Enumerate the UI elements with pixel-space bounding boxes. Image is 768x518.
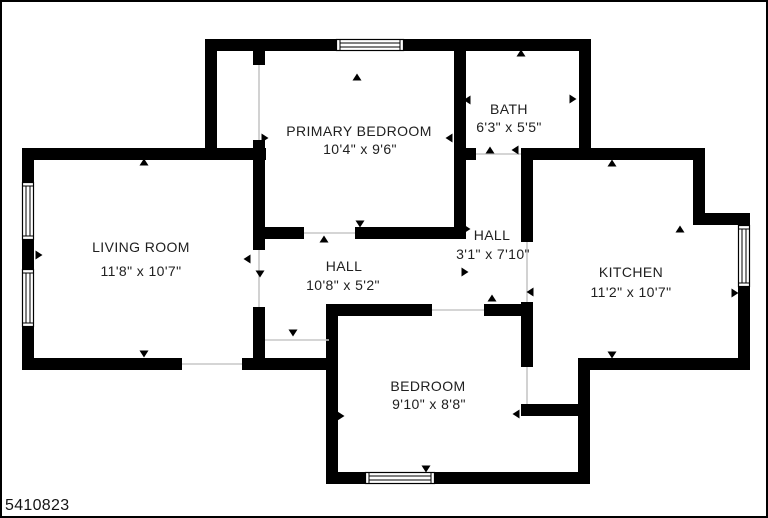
listing-id: 5410823	[5, 498, 69, 514]
door-swing-arrow-icon	[140, 351, 149, 358]
window	[23, 270, 34, 327]
wall	[22, 358, 182, 370]
wall	[205, 39, 336, 51]
door-swing-arrow-icon	[464, 225, 471, 234]
door-swing-arrow-icon	[488, 295, 497, 302]
wall	[253, 307, 265, 370]
door-swing-arrow-icon	[570, 95, 577, 104]
floorplan-svg	[2, 2, 768, 518]
window	[337, 40, 404, 51]
door-swing-arrow-icon	[422, 466, 431, 473]
wall	[484, 304, 529, 316]
wall	[466, 148, 476, 160]
wall	[579, 39, 591, 160]
wall	[22, 148, 266, 160]
door-swing-arrow-icon	[608, 352, 617, 359]
door-swing-arrow-icon	[256, 271, 265, 278]
wall	[326, 304, 338, 484]
wall	[738, 287, 750, 370]
window	[23, 183, 34, 240]
wall	[22, 148, 34, 182]
door-swing-arrow-icon	[446, 134, 453, 143]
door-swing-arrow-icon	[36, 251, 43, 260]
wall	[578, 358, 750, 370]
wall	[205, 39, 217, 155]
wall	[253, 227, 304, 239]
door-swing-arrow-icon	[486, 147, 495, 154]
wall	[404, 39, 591, 51]
wall	[326, 472, 365, 484]
wall	[355, 227, 462, 239]
wall	[435, 472, 590, 484]
wall	[454, 49, 466, 239]
window	[366, 473, 435, 484]
door-swing-arrow-icon	[512, 146, 519, 155]
window	[739, 226, 750, 287]
door-swing-arrow-icon	[353, 74, 362, 81]
floorplan-canvas: LIVING ROOM11'8" x 10'7"PRIMARY BEDROOM1…	[0, 0, 768, 518]
door-swing-arrow-icon	[320, 236, 329, 243]
door-swing-arrow-icon	[513, 410, 520, 419]
door-swing-arrow-icon	[338, 412, 345, 421]
wall	[329, 304, 432, 316]
door-swing-arrow-icon	[608, 160, 617, 167]
door-swing-arrow-icon	[289, 330, 298, 337]
door-swing-arrow-icon	[676, 226, 685, 233]
wall	[578, 358, 590, 484]
wall	[521, 148, 533, 242]
wall	[521, 148, 705, 160]
door-swing-arrow-icon	[244, 255, 251, 264]
door-swing-arrow-icon	[732, 289, 739, 298]
door-swing-arrow-icon	[356, 221, 365, 228]
door-swing-arrow-icon	[462, 268, 469, 277]
wall	[738, 213, 750, 225]
wall	[253, 49, 265, 65]
wall	[22, 240, 34, 269]
